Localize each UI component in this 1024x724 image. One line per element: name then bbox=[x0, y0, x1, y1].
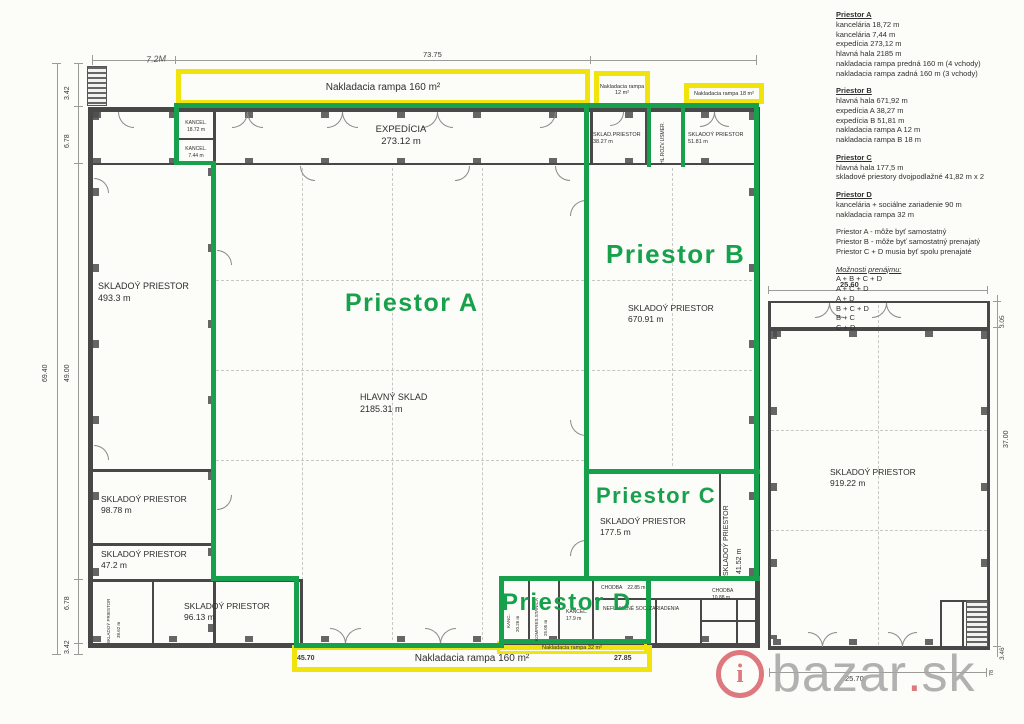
wall-segment bbox=[88, 543, 216, 546]
room-area: 18.72 m bbox=[179, 127, 213, 134]
dim-tick bbox=[92, 55, 93, 65]
legend-line: expedícia A 38,27 m bbox=[836, 106, 1022, 116]
dim-right-5: 78 bbox=[989, 662, 995, 676]
axis-line bbox=[592, 280, 752, 281]
space-label-a: Priestor A bbox=[345, 289, 479, 318]
dim-bottom-1: 45.70 bbox=[297, 655, 315, 662]
room-label-sklad9878: SKLADOÝ PRIESTOR 98.78 m bbox=[101, 494, 211, 516]
dim-tick bbox=[74, 163, 83, 164]
door-arc-icon bbox=[455, 166, 470, 181]
watermark-name: bazar bbox=[772, 644, 907, 704]
wall-segment bbox=[177, 138, 215, 140]
dim-tick bbox=[74, 106, 83, 107]
pilaster-strip bbox=[93, 636, 755, 642]
legend-title-c: Priestor C bbox=[836, 153, 1022, 163]
legend-line: hlavná hala 2185 m bbox=[836, 49, 1022, 59]
space-label-c: Priestor C bbox=[596, 483, 716, 509]
room-area: 493.3 m bbox=[98, 293, 210, 305]
green-outline-rozv-right bbox=[681, 103, 685, 167]
dim-tick bbox=[74, 63, 83, 64]
legend-line: kancelária 7,44 m bbox=[836, 30, 1022, 40]
ramp-label: Nakladacia rampa 160 m² bbox=[326, 82, 441, 93]
legend-note: Priestor A - môže byť samostatný bbox=[836, 227, 1022, 237]
green-outline-ab-divider bbox=[584, 103, 589, 581]
door-arc-icon bbox=[247, 112, 263, 128]
watermark-tld: sk bbox=[922, 644, 976, 704]
green-outline-right bbox=[754, 103, 759, 581]
axis-line bbox=[482, 168, 483, 640]
door-arc-icon bbox=[714, 112, 729, 127]
room-area: 7.44 m bbox=[179, 153, 213, 160]
green-outline-a-jog-bottom bbox=[211, 576, 299, 581]
room-name: SKLADOÝ PRIESTOR bbox=[101, 549, 211, 560]
door-arc-icon bbox=[232, 112, 248, 128]
ramp-box-18: Nakladacia rampa 18 m² bbox=[684, 83, 764, 104]
dim-tick bbox=[175, 56, 176, 64]
room-area: 38.62 m bbox=[116, 622, 121, 638]
dim-tick bbox=[74, 643, 83, 644]
room-area: 47.2 m bbox=[101, 560, 211, 571]
green-outline-a-left bbox=[211, 161, 216, 581]
wall-segment bbox=[719, 472, 721, 579]
dim-left-4: 49.00 bbox=[64, 350, 71, 382]
legend-title-d: Priestor D bbox=[836, 190, 1022, 200]
green-outline-rozv-left bbox=[647, 103, 651, 167]
door-arc-icon bbox=[700, 112, 715, 127]
dim-bottom-2: 27.85 bbox=[614, 655, 632, 662]
axis-line bbox=[771, 530, 987, 531]
room-area: 38.27 m bbox=[593, 139, 645, 146]
legend-line: nakladacia rampa zadná 160 m (3 vchody) bbox=[836, 69, 1022, 79]
green-outline-d-bottom bbox=[499, 639, 651, 644]
room-label-sklad91922: SKLADOÝ PRIESTOR 919.22 m bbox=[830, 467, 934, 489]
legend-line: hlavná hala 671,92 m bbox=[836, 96, 1022, 106]
door-arc-icon bbox=[217, 495, 232, 510]
dim-line bbox=[93, 60, 757, 61]
room-area: 41.52 m bbox=[736, 549, 743, 574]
green-outline-top bbox=[174, 103, 758, 108]
legend-options-title: Možnosti prenájmu: bbox=[836, 265, 1022, 275]
legend-option: A + B + C + D bbox=[836, 274, 1022, 284]
stairs-hatch-icon bbox=[87, 66, 107, 106]
door-arc-icon bbox=[610, 112, 624, 126]
watermark-bazar-sk: i bazar . sk bbox=[716, 644, 976, 704]
legend: Priestor A kancelária 18,72 m kancelária… bbox=[836, 10, 1022, 333]
door-arc-icon bbox=[345, 628, 361, 644]
legend-option: B + C + D bbox=[836, 304, 1022, 314]
room-name: SKLADOÝ PRIESTOR bbox=[628, 303, 736, 314]
dim-tick bbox=[756, 55, 757, 65]
wall-segment bbox=[88, 469, 216, 472]
room-area: 919.22 m bbox=[830, 478, 934, 489]
room-name: SKLADOÝ PRIESTOR bbox=[106, 599, 111, 644]
watermark-dot: . bbox=[907, 644, 921, 704]
legend-line: expedícia B 51,81 m bbox=[836, 116, 1022, 126]
room-area: 273.12 m bbox=[356, 136, 446, 148]
room-label-expedicia: EXPEDÍCIA 273.12 m bbox=[356, 124, 446, 149]
room-label-sklad472: SKLADOÝ PRIESTOR 47.2 m bbox=[101, 549, 211, 571]
dim-left-6: 3.42 bbox=[64, 630, 71, 654]
room-area: 670.91 m bbox=[628, 314, 736, 325]
room-label-sklad3862-area: 38.62 m bbox=[116, 598, 121, 638]
room-name: SKLAD.PRIESTOR bbox=[593, 132, 645, 139]
ramp-label: Nakladacia rampa 18 m² bbox=[694, 91, 754, 97]
door-arc-icon bbox=[425, 628, 441, 644]
legend-line: nakladacia rampa 32 m bbox=[836, 210, 1022, 220]
door-arc-icon bbox=[330, 628, 346, 644]
dim-line bbox=[997, 295, 998, 657]
room-label-sklad5181: SKLADOÝ PRIESTOR 51.81 m bbox=[688, 132, 754, 146]
axis-line bbox=[771, 430, 987, 431]
axis-line bbox=[216, 370, 584, 371]
room-area: 25.05 m bbox=[543, 620, 548, 636]
legend-title-a: Priestor A bbox=[836, 10, 1022, 20]
legend-line: nakladacia rampa A 12 m bbox=[836, 125, 1022, 135]
room-label-hlrozv: HL.ROZV.USMER. bbox=[660, 110, 666, 164]
legend-option: C + D bbox=[836, 323, 1022, 333]
legend-option: A + D bbox=[836, 294, 1022, 304]
door-arc-icon bbox=[540, 112, 556, 128]
green-outline-a-jog-top bbox=[174, 161, 216, 165]
room-label-sklad3827: SKLAD.PRIESTOR 38.27 m bbox=[593, 132, 645, 146]
room-label-chodba2: CHODBA 10.88 m bbox=[712, 588, 748, 601]
room-label-sklad9613: SKLADOÝ PRIESTOR 96.13 m bbox=[184, 601, 296, 623]
space-label-b: Priestor B bbox=[606, 239, 745, 270]
dim-left-3: 69.40 bbox=[42, 350, 49, 382]
room-label-hlavnysklad: HLAVNÝ SKLAD 2185.31 m bbox=[360, 392, 456, 415]
door-arc-icon bbox=[217, 250, 232, 265]
door-arc-icon bbox=[440, 628, 456, 644]
green-outline-c-top bbox=[584, 469, 760, 474]
room-name: SKLADOÝ PRIESTOR bbox=[98, 281, 210, 293]
axis-line bbox=[302, 168, 303, 640]
dim-tick bbox=[74, 654, 83, 655]
door-arc-icon bbox=[815, 303, 830, 318]
dim-tick bbox=[768, 286, 769, 294]
room-area: 96.13 m bbox=[184, 612, 296, 623]
room-area: 2185.31 m bbox=[360, 404, 456, 416]
axis-line bbox=[216, 280, 584, 281]
dim-tick bbox=[986, 668, 987, 677]
green-outline-a-bottom bbox=[294, 643, 504, 648]
legend-title-b: Priestor B bbox=[836, 86, 1022, 96]
room-area: 98.78 m bbox=[101, 505, 211, 516]
room-area: 10.88 m bbox=[712, 595, 748, 602]
legend-line: hlavná hala 177,5 m bbox=[836, 163, 1022, 173]
dim-top: 73.75 bbox=[423, 50, 442, 59]
legend-line: kancelária + sociálne zariadenie 90 m bbox=[836, 200, 1022, 210]
dim-handwritten: 7.2M bbox=[146, 53, 167, 64]
legend-line: expedícia 273,12 m bbox=[836, 39, 1022, 49]
ramp-box-top-160: Nakladacia rampa 160 m² bbox=[176, 69, 590, 105]
ramp-label: Nakladacia rampa 32 m² bbox=[542, 645, 602, 651]
room-label-sklad1775: SKLADOÝ PRIESTOR 177.5 m bbox=[600, 516, 710, 538]
legend-note: Priestor B - môže byť samostatný prenaja… bbox=[836, 237, 1022, 247]
room-label-sklad4152-area: 41.52 m bbox=[736, 504, 743, 574]
ramp-label: Nakladacia rampa 12 m² bbox=[599, 84, 645, 96]
room-label-sklad67091: SKLADOÝ PRIESTOR 670.91 m bbox=[628, 303, 736, 325]
dim-left-5: 6.78 bbox=[64, 584, 71, 610]
legend-line: skladové priestory dvojpodlažné 41,82 m … bbox=[836, 172, 1022, 182]
room-label-sklad4152-name: SKLADOÝ PRIESTOR bbox=[723, 478, 730, 576]
legend-line: nakladacia rampa B 18 m bbox=[836, 135, 1022, 145]
door-arc-icon bbox=[327, 112, 343, 128]
legend-option: A + C + D bbox=[836, 284, 1022, 294]
door-arc-icon bbox=[94, 178, 109, 193]
room-name: SKLADOÝ PRIESTOR bbox=[600, 516, 710, 527]
legend-line: nakladacia rampa predná 160 m (4 vchody) bbox=[836, 59, 1022, 69]
pilaster-strip bbox=[771, 331, 777, 639]
room-name: SKLADOÝ PRIESTOR bbox=[184, 601, 296, 612]
room-label-sklad3862-name: SKLADOÝ PRIESTOR bbox=[106, 586, 111, 644]
room-label-sklad4933: SKLADOÝ PRIESTOR 493.3 m bbox=[98, 281, 210, 304]
dim-tick bbox=[52, 654, 61, 655]
room-area: 51.81 m bbox=[688, 139, 754, 146]
room-name: HLAVNÝ SKLAD bbox=[360, 392, 456, 404]
room-area: 177.5 m bbox=[600, 527, 710, 538]
room-name: SKLADOÝ PRIESTOR bbox=[830, 467, 934, 478]
room-label-kancel2: KANCEL. 7.44 m bbox=[179, 146, 213, 159]
dim-tick bbox=[74, 579, 83, 580]
dim-line bbox=[57, 63, 58, 655]
stairs-hatch-icon bbox=[966, 600, 988, 647]
dim-right-4: 3.46 bbox=[999, 636, 1006, 660]
dim-tick bbox=[52, 63, 61, 64]
room-area: 20.26 m bbox=[515, 616, 520, 632]
info-circle-icon: i bbox=[716, 650, 764, 698]
dim-left-2: 6.78 bbox=[64, 122, 71, 148]
room-name: HL.ROZV.USMER. bbox=[660, 122, 666, 164]
floor-plan-canvas: Nakladacia rampa 160 m² Nakladacia rampa… bbox=[0, 0, 1024, 724]
legend-note: Priestor C + D musia byť spolu prenajaté bbox=[836, 247, 1022, 257]
dim-left-1: 3.42 bbox=[64, 76, 71, 100]
green-outline-cd-divider bbox=[499, 576, 760, 581]
dim-tick bbox=[590, 56, 591, 64]
legend-line: kancelária 18,72 m bbox=[836, 20, 1022, 30]
room-label-kancel1: KANCEL. 18.72 m bbox=[179, 120, 213, 133]
space-label-d: Priestor D bbox=[502, 589, 632, 617]
dim-line bbox=[78, 63, 79, 655]
room-name: SKLADOÝ PRIESTOR bbox=[688, 132, 754, 139]
room-name: SKLADOÝ PRIESTOR bbox=[101, 494, 211, 505]
legend-option: B + C bbox=[836, 313, 1022, 323]
wall-segment bbox=[987, 301, 990, 650]
room-name: SKLADOÝ PRIESTOR bbox=[723, 505, 730, 576]
room-name: EXPEDÍCIA bbox=[356, 124, 446, 136]
axis-line bbox=[216, 460, 584, 461]
door-arc-icon bbox=[555, 166, 570, 181]
axis-line bbox=[592, 370, 752, 371]
door-arc-icon bbox=[118, 112, 134, 128]
pilaster-strip bbox=[981, 331, 987, 639]
dim-right-3: 37.00 bbox=[1003, 418, 1010, 448]
door-arc-icon bbox=[94, 445, 109, 460]
ramp-label: Nakladacia rampa 160 m² bbox=[415, 653, 530, 664]
